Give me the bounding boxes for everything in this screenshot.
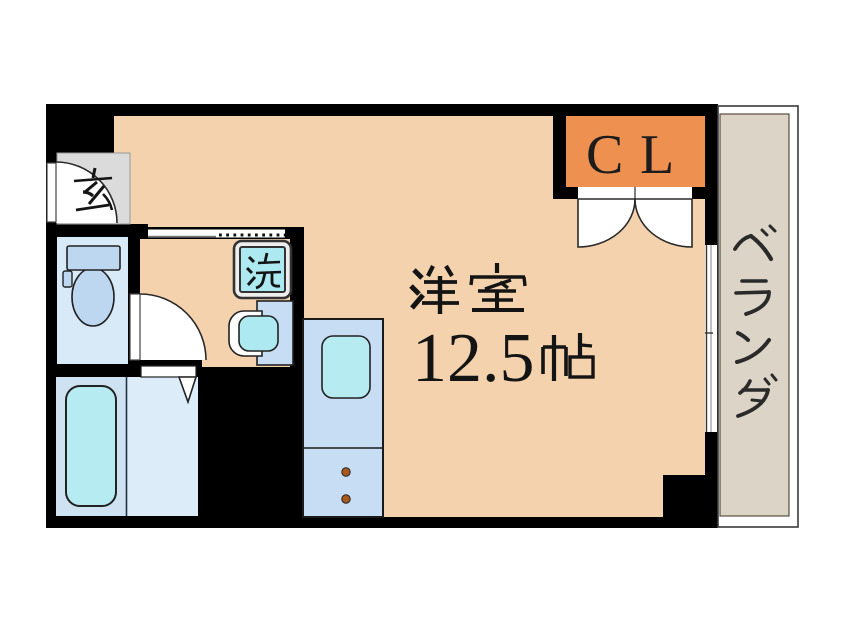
- svg-text:12.5: 12.5: [412, 320, 535, 397]
- svg-text:L: L: [640, 124, 674, 186]
- svg-text:C: C: [586, 124, 623, 186]
